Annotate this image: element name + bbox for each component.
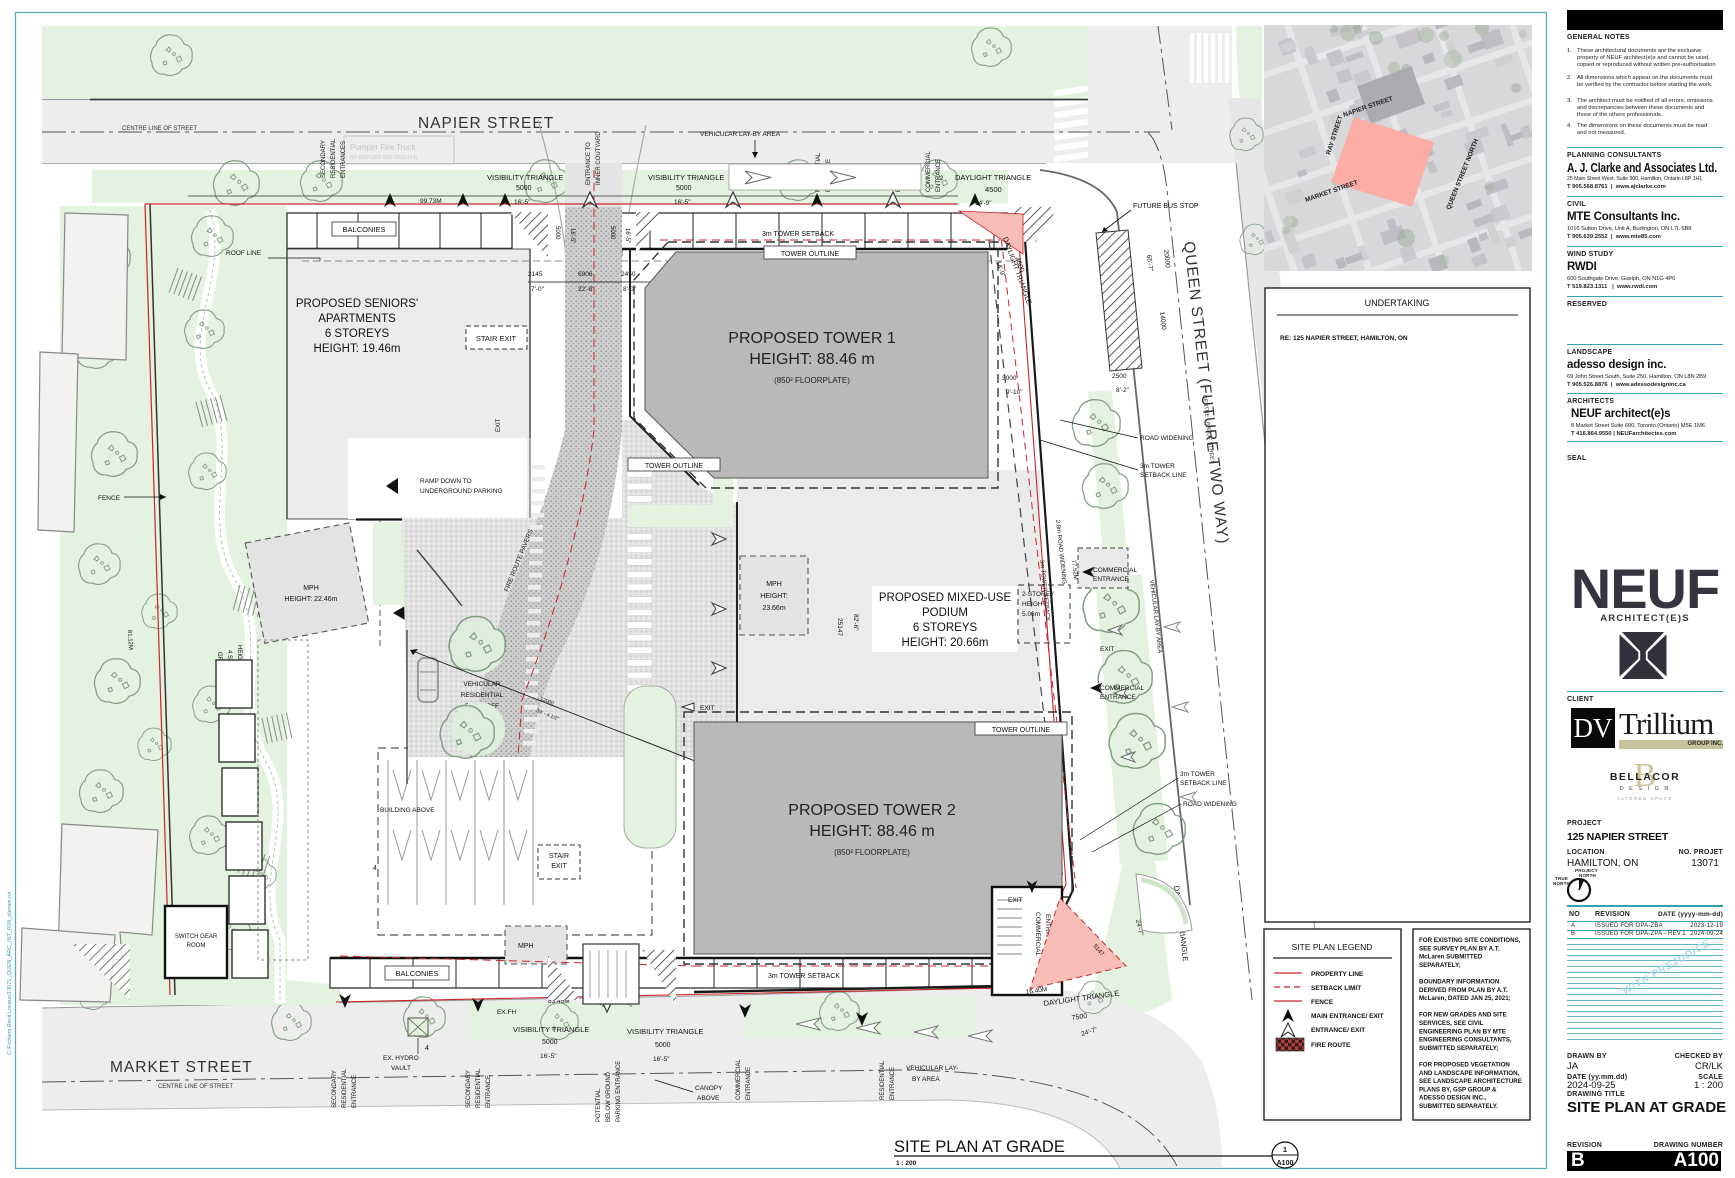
svg-text:STAIR: STAIR	[549, 853, 569, 860]
svg-text:PLANS BY, GSP GROUP &: PLANS BY, GSP GROUP &	[1419, 1086, 1497, 1093]
svg-text:POTENTIAL: POTENTIAL	[596, 1088, 602, 1122]
svg-text:ENTRANCE TO: ENTRANCE TO	[586, 142, 592, 185]
svg-text:PROPERTY LINE: PROPERTY LINE	[1311, 971, 1364, 978]
svg-text:3m TOWER SETBACK: 3m TOWER SETBACK	[768, 973, 840, 980]
svg-text:BY AREA: BY AREA	[912, 1076, 940, 1083]
svg-text:ADESSO DESIGN INC.,: ADESSO DESIGN INC.,	[1419, 1095, 1487, 1102]
svg-text:PARKING ENTRANCE: PARKING ENTRANCE	[616, 1061, 622, 1122]
svg-text:SITE PLAN AT GRADE: SITE PLAN AT GRADE	[894, 1138, 1065, 1156]
svg-text:HEIGHT: 22.46m: HEIGHT: 22.46m	[285, 596, 338, 603]
svg-text:SETBACK LINE: SETBACK LINE	[1140, 472, 1187, 479]
svg-text:EXIT: EXIT	[1100, 646, 1114, 653]
svg-text:CENTRE LINE OF STREET: CENTRE LINE OF STREET	[122, 126, 197, 132]
svg-text:8'-2": 8'-2"	[1116, 387, 1130, 394]
svg-text:COMMERCIAL: COMMERCIAL	[736, 1059, 742, 1100]
svg-text:ENTRANCE: ENTRANCE	[890, 1067, 896, 1100]
svg-text:5000: 5000	[609, 226, 615, 240]
svg-text:PROPOSED TOWER 1: PROPOSED TOWER 1	[728, 330, 896, 347]
svg-text:MPH: MPH	[766, 581, 782, 588]
svg-text:16'-5": 16'-5"	[514, 199, 531, 206]
svg-text:SECONDARY: SECONDARY	[332, 1070, 338, 1108]
svg-text:FENCE: FENCE	[98, 495, 121, 502]
svg-text:AND LANDSCAPE INFORMATION,: AND LANDSCAPE INFORMATION,	[1419, 1070, 1520, 1077]
svg-text:ENTRANCES: ENTRANCES	[341, 141, 347, 178]
svg-text:RE: 125 NAPIER STREET, HAMILTO: RE: 125 NAPIER STREET, HAMILTON, ON	[1280, 335, 1408, 342]
svg-text:16'-5": 16'-5"	[674, 199, 691, 206]
svg-text:PROPOSED SENIORS': PROPOSED SENIORS'	[296, 298, 418, 310]
svg-text:5000: 5000	[655, 1042, 671, 1049]
svg-text:5000: 5000	[676, 185, 692, 192]
svg-text:16'-5": 16'-5"	[569, 228, 575, 243]
svg-text:HEIGHT: 20.66m: HEIGHT: 20.66m	[902, 637, 989, 649]
svg-text:RESIDENTIAL: RESIDENTIAL	[331, 138, 337, 178]
svg-text:MPH: MPH	[518, 943, 534, 950]
svg-text:VISIBILITY TRIANGLE: VISIBILITY TRIANGLE	[627, 1027, 703, 1036]
svg-text:EX.FH: EX.FH	[497, 1009, 516, 1016]
svg-text:ENTRANCE: ENTRANCE	[746, 1067, 752, 1100]
svg-text:ENTRANCE: ENTRANCE	[352, 1075, 358, 1108]
svg-text:FOR EXISTING SITE CONDITIONS,: FOR EXISTING SITE CONDITIONS,	[1419, 937, 1521, 944]
svg-text:3m TOWER: 3m TOWER	[1180, 771, 1215, 778]
svg-text:SITE PLAN LEGEND: SITE PLAN LEGEND	[1292, 942, 1373, 952]
svg-text:TOWER OUTLINE: TOWER OUTLINE	[992, 727, 1051, 734]
svg-text:VISIBILITY TRIANGLE: VISIBILITY TRIANGLE	[513, 1025, 589, 1034]
svg-text:HEIGHT: 19.46m: HEIGHT: 19.46m	[314, 343, 401, 355]
svg-text:PROPOSED TOWER 2: PROPOSED TOWER 2	[788, 802, 956, 819]
svg-text:5000: 5000	[516, 185, 532, 192]
svg-text:VEHICULAR: VEHICULAR	[463, 681, 501, 688]
svg-text:16'-5": 16'-5"	[653, 1056, 670, 1063]
svg-text:COMMERCIAL: COMMERCIAL	[1093, 567, 1137, 574]
svg-text:6 STOREYS: 6 STOREYS	[913, 622, 978, 634]
svg-text:SWITCH GEAR: SWITCH GEAR	[175, 934, 218, 940]
svg-text:CENTRE LINE OF STREET: CENTRE LINE OF STREET	[158, 1084, 233, 1090]
svg-text:BALCONIES: BALCONIES	[396, 969, 439, 978]
svg-text:FENCE: FENCE	[1311, 999, 1334, 1006]
svg-text:ROOM: ROOM	[187, 943, 206, 949]
svg-text:FOR PROPOSED VEGETATION: FOR PROPOSED VEGETATION	[1419, 1062, 1510, 1069]
svg-text:99.73M: 99.73M	[420, 198, 442, 205]
svg-text:16'-5": 16'-5"	[540, 1053, 557, 1060]
svg-text:ENTRANCE/ EXIT: ENTRANCE/ EXIT	[1311, 1027, 1365, 1034]
svg-text:MPH: MPH	[303, 585, 319, 592]
svg-text:EXIT: EXIT	[496, 418, 502, 432]
svg-text:STAIR EXIT: STAIR EXIT	[476, 334, 517, 343]
svg-text:SECONDARY: SECONDARY	[321, 140, 327, 178]
svg-text:(850² FLOORPLATE): (850² FLOORPLATE)	[834, 848, 910, 857]
svg-text:COMMERCIAL: COMMERCIAL	[926, 151, 932, 192]
svg-text:FUTURE BUS STOP: FUTURE BUS STOP	[1133, 203, 1199, 210]
svg-text:McLaren, DATED JAN 25, 2021;: McLaren, DATED JAN 25, 2021;	[1419, 995, 1511, 1002]
svg-text:5.06m: 5.06m	[1022, 611, 1040, 618]
svg-text:16'-5": 16'-5"	[624, 228, 630, 243]
svg-text:(850² FLOORPLATE): (850² FLOORPLATE)	[774, 376, 850, 385]
svg-text:ENTRANCE: ENTRANCE	[1100, 694, 1136, 701]
svg-text:APARTMENTS: APARTMENTS	[318, 313, 396, 325]
svg-text:1 : 200: 1 : 200	[896, 1160, 917, 1167]
svg-text:ENTRANCE: ENTRANCE	[1093, 576, 1129, 583]
svg-text:EX. HYDRO: EX. HYDRO	[383, 1055, 419, 1062]
svg-text:82'-6": 82'-6"	[852, 614, 859, 631]
svg-text:VEHICULAR LAY-BY AREA: VEHICULAR LAY-BY AREA	[700, 131, 781, 138]
svg-text:4: 4	[425, 1045, 429, 1052]
svg-text:UNDERTAKING: UNDERTAKING	[1365, 298, 1430, 308]
svg-text:4: 4	[373, 865, 377, 872]
svg-text:ROOF LINE: ROOF LINE	[226, 250, 262, 257]
svg-text:C:\Fichiers Revit Locaux\13071: C:\Fichiers Revit Locaux\13071_QUEN_ARC_…	[7, 891, 13, 1055]
svg-text:ENGINEERING PLAN BY MTE: ENGINEERING PLAN BY MTE	[1419, 1028, 1506, 1035]
svg-text:SUBMITTED SEPARATELY.: SUBMITTED SEPARATELY.	[1419, 1103, 1498, 1110]
svg-text:2450: 2450	[621, 271, 636, 278]
svg-text:McLaren SUBMITTED: McLaren SUBMITTED	[1419, 954, 1483, 961]
svg-text:ROAD WIDENING: ROAD WIDENING	[1140, 435, 1194, 442]
svg-text:SEE SURVEY PLAN BY A.T.: SEE SURVEY PLAN BY A.T.	[1419, 945, 1500, 952]
svg-text:COMMERCIAL: COMMERCIAL	[1100, 685, 1144, 692]
svg-text:2500: 2500	[1112, 373, 1127, 380]
svg-text:7'-0": 7'-0"	[531, 286, 545, 293]
svg-text:RESIDENTIAL: RESIDENTIAL	[880, 1060, 886, 1100]
svg-text:HEIGHT: 88.46 m: HEIGHT: 88.46 m	[749, 351, 874, 368]
svg-text:Pumper Fire Truck: Pumper Fire Truck	[350, 143, 417, 152]
svg-text:81.12M: 81.12M	[126, 630, 133, 650]
svg-text:ENTRANCE: ENTRANCE	[486, 1075, 492, 1108]
svg-text:4500: 4500	[985, 185, 1002, 194]
svg-text:VAULT: VAULT	[391, 1065, 411, 1072]
svg-text:PROPOSED MIXED-USE: PROPOSED MIXED-USE	[879, 592, 1012, 604]
svg-text:VISIBILITY TRIANGLE: VISIBILITY TRIANGLE	[648, 173, 724, 182]
svg-text:1: 1	[1283, 1145, 1287, 1154]
svg-text:2-STOREY: 2-STOREY	[1022, 591, 1055, 598]
svg-text:3m TOWER SETBACK: 3m TOWER SETBACK	[762, 231, 834, 238]
svg-text:ABOVE: ABOVE	[697, 1095, 720, 1102]
svg-text:EXIT: EXIT	[551, 863, 567, 870]
svg-text:RAMP DOWN TO: RAMP DOWN TO	[420, 478, 472, 485]
svg-text:NAPIER STREET: NAPIER STREET	[418, 115, 554, 132]
svg-text:BUILDING ABOVE: BUILDING ABOVE	[380, 807, 435, 814]
svg-text:RESIDENTIAL: RESIDENTIAL	[461, 692, 504, 699]
svg-text:5000: 5000	[542, 1039, 558, 1046]
svg-text:FIRE ROUTE: FIRE ROUTE	[1311, 1042, 1351, 1049]
svg-text:MAIN ENTRANCE/ EXIT: MAIN ENTRANCE/ EXIT	[1311, 1013, 1384, 1020]
svg-text:BALCONIES: BALCONIES	[343, 225, 386, 234]
svg-text:ENGINEERING CONSULTANTS,: ENGINEERING CONSULTANTS,	[1419, 1037, 1512, 1044]
svg-text:SERVICES, SEE CIVIL: SERVICES, SEE CIVIL	[1419, 1020, 1484, 1027]
svg-text:TOWER OUTLINE: TOWER OUTLINE	[781, 251, 840, 258]
svg-text:EXIT: EXIT	[700, 705, 714, 712]
svg-text:FOR NEW GRADES AND SITE: FOR NEW GRADES AND SITE	[1419, 1012, 1507, 1019]
svg-text:SEE LANDSCAPE ARCHITECTURE: SEE LANDSCAPE ARCHITECTURE	[1419, 1078, 1522, 1085]
svg-text:SEPARATELY;: SEPARATELY;	[1419, 962, 1461, 969]
svg-text:RESIDENTIAL: RESIDENTIAL	[476, 1068, 482, 1108]
svg-text:22'-8": 22'-8"	[578, 286, 595, 293]
svg-text:MARKET STREET: MARKET STREET	[110, 1059, 253, 1076]
svg-text:SETBACK LINE: SETBACK LINE	[1180, 780, 1227, 787]
svg-text:TOWER OUTLINE: TOWER OUTLINE	[645, 463, 704, 470]
svg-text:PODIUM: PODIUM	[922, 607, 968, 619]
svg-text:23.66m: 23.66m	[762, 605, 786, 612]
svg-text:INNER COUTYARD: INNER COUTYARD	[596, 131, 602, 185]
svg-text:BOUNDARY INFORMATION: BOUNDARY INFORMATION	[1419, 979, 1500, 986]
svg-text:6 STOREYS: 6 STOREYS	[325, 328, 390, 340]
svg-text:9'-10": 9'-10"	[1006, 389, 1023, 396]
svg-text:HEIGHT:: HEIGHT:	[760, 593, 788, 600]
svg-text:ROAD WIDENING: ROAD WIDENING	[1183, 801, 1237, 808]
svg-text:5000: 5000	[554, 226, 560, 240]
svg-text:VISIBILITY TRIANGLE: VISIBILITY TRIANGLE	[487, 173, 563, 182]
svg-text:SETBACK LIMIT: SETBACK LIMIT	[1311, 985, 1361, 992]
svg-text:25147: 25147	[836, 618, 843, 636]
svg-text:6906: 6906	[578, 271, 593, 278]
svg-text:CANOPY: CANOPY	[695, 1085, 723, 1092]
svg-text:DAYLIGHT TRIANGLE: DAYLIGHT TRIANGLE	[955, 173, 1031, 182]
svg-text:EXIT: EXIT	[1008, 897, 1022, 904]
svg-text:HEIGHT: 88.46 m: HEIGHT: 88.46 m	[809, 823, 934, 840]
svg-text:3m TOWER: 3m TOWER	[1140, 463, 1175, 470]
svg-text:BP REPORT 650 2010 (14): BP REPORT 650 2010 (14)	[350, 155, 417, 161]
svg-text:COMMERCIAL: COMMERCIAL	[1034, 912, 1041, 956]
svg-text:RESIDENTIAL: RESIDENTIAL	[342, 1068, 348, 1108]
svg-text:VEHICULAR LAY-: VEHICULAR LAY-	[906, 1065, 958, 1072]
svg-text:A100: A100	[1277, 1160, 1294, 1167]
svg-text:DERIVED FROM PLAN BY A.T.: DERIVED FROM PLAN BY A.T.	[1419, 987, 1508, 994]
svg-text:BELOW GROUND: BELOW GROUND	[606, 1071, 612, 1122]
svg-text:SECONDARY: SECONDARY	[466, 1070, 472, 1108]
svg-text:UNDERGROUND PARKING: UNDERGROUND PARKING	[420, 488, 503, 495]
svg-text:SUBMITTED SEPARATELY;: SUBMITTED SEPARATELY;	[1419, 1045, 1499, 1052]
